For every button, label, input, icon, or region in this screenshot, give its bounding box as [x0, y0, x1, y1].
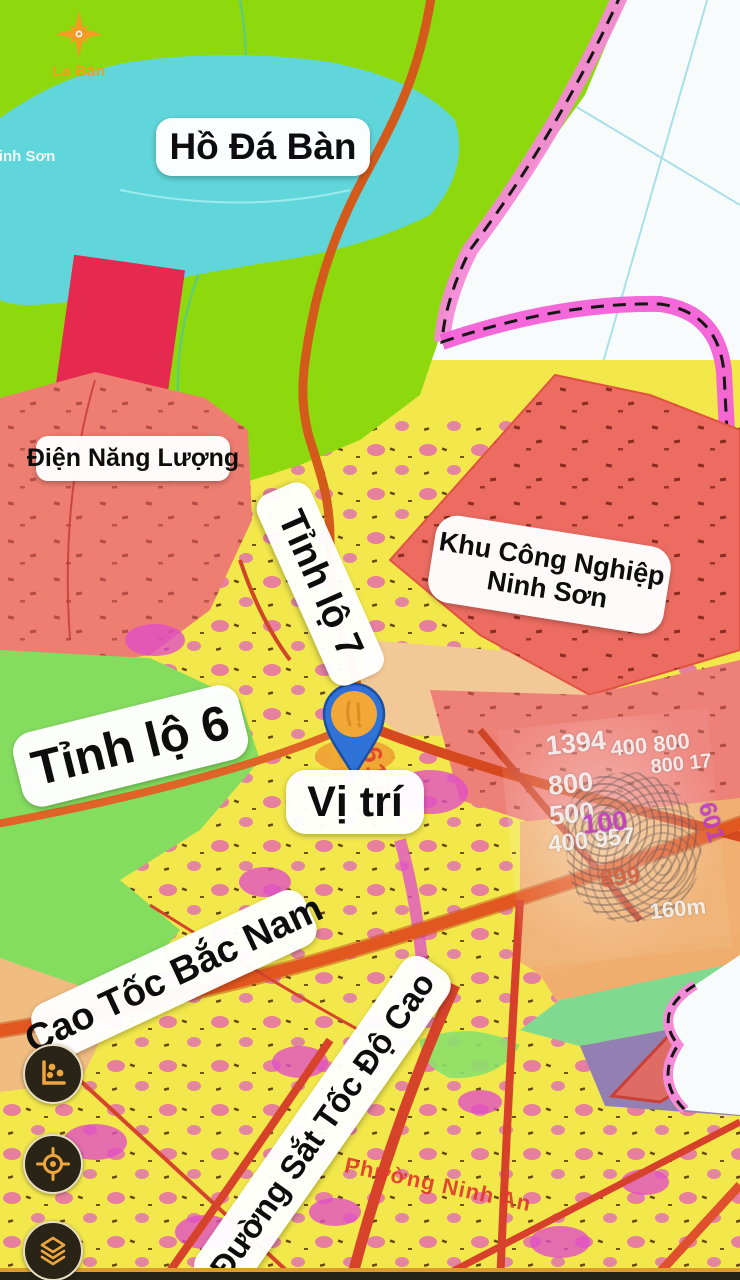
wm-number: 100 [581, 805, 629, 841]
label-lake: Hồ Đá Bàn [156, 118, 370, 176]
chart-scatter-button[interactable] [23, 1044, 83, 1104]
app-logo-text: La Bàn [24, 63, 134, 80]
wm-number: 1394 [544, 725, 607, 762]
wm-number: 800 17 [650, 750, 713, 779]
label-location-text: Vị trí [307, 778, 403, 827]
location-pin-icon [316, 680, 392, 780]
gps-locate-button[interactable] [23, 1134, 83, 1194]
gps-locate-icon [36, 1147, 70, 1181]
compass-icon [51, 8, 107, 60]
bottom-bar [0, 1268, 740, 1280]
wm-number: 160m [649, 893, 708, 925]
label-energy-text: Điện Năng Lượng [27, 444, 239, 473]
layers-button[interactable] [23, 1221, 83, 1280]
app-logo: La Bàn [24, 8, 134, 80]
label-lake-text: Hồ Đá Bàn [169, 126, 356, 168]
map-canvas[interactable]: Ninh Sơn 6179 Phường Ninh An 1394 400 80… [0, 0, 740, 1280]
chart-scatter-icon [37, 1058, 69, 1090]
layers-icon [36, 1234, 70, 1268]
wm-number: 899 [599, 862, 642, 894]
district-name-text: Ninh Sơn [0, 148, 55, 165]
watermark-notes: 1394 400 800 800 17 800 500 400 957 100 … [498, 708, 732, 969]
label-energy: Điện Năng Lượng [36, 436, 230, 481]
label-location: Vị trí [286, 770, 424, 834]
